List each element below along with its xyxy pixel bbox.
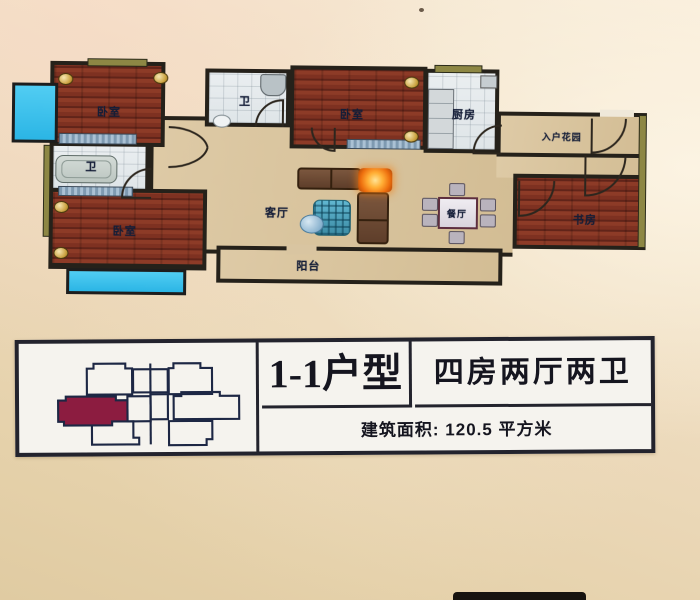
label-balcony: 阳台: [296, 257, 320, 273]
photo-edge-object: [453, 592, 586, 600]
label-entry-garden: 入户花园: [542, 130, 582, 143]
label-bath-middle: 卫: [239, 93, 251, 109]
label-bedroom-top-right: 卧室: [340, 106, 364, 122]
rooms-summary-label: 四房两厅两卫: [415, 340, 651, 407]
label-bedroom-top-left: 卧室: [97, 103, 121, 119]
photo-background: 卧室 卫 卧室 卫 卧室 厨房 入户花园 书房 客厅 餐厅 阳台: [0, 0, 700, 600]
area-label: 建筑面积: 120.5 平方米: [262, 409, 651, 451]
unit-type-label: 1-1户型: [262, 342, 412, 409]
label-bedroom-bottom-left: 卧室: [113, 223, 137, 239]
label-living: 客厅: [265, 204, 289, 220]
label-study: 书房: [573, 211, 597, 227]
label-dining: 餐厅: [447, 207, 467, 220]
info-panel: 1-1户型 四房两厅两卫 建筑面积: 120.5 平方米: [15, 336, 656, 457]
floor-plan: 卧室 卫 卧室 卫 卧室 厨房 入户花园 书房 客厅 餐厅 阳台: [0, 0, 700, 604]
highlighted-unit: [58, 396, 128, 425]
key-plan-cell: [19, 342, 260, 452]
label-kitchen: 厨房: [452, 106, 476, 122]
label-bath-left: 卫: [85, 158, 97, 174]
door-arcs-layer: [0, 0, 700, 604]
key-plan-diagram: [25, 346, 251, 451]
